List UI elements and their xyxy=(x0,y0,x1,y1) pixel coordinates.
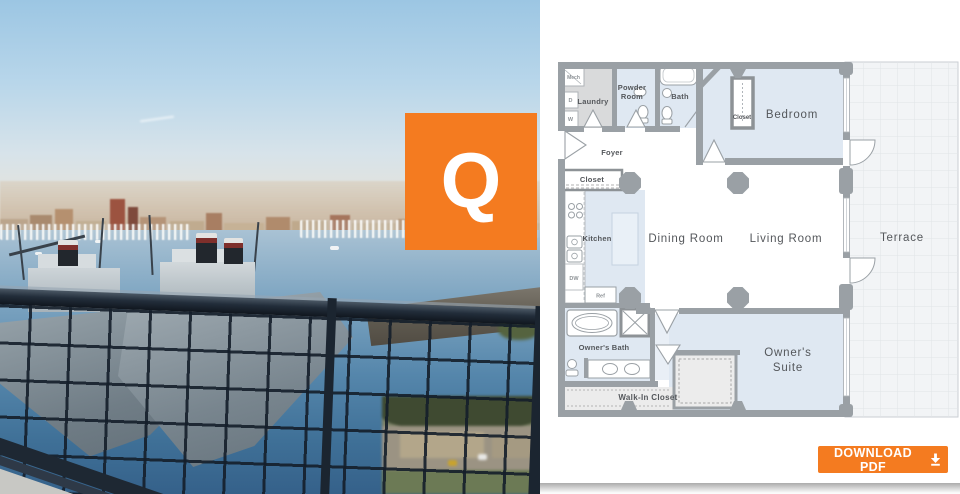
label-laundry: Laundry xyxy=(577,97,609,106)
ship-funnel xyxy=(224,238,243,264)
label-dining-room: Dining Room xyxy=(648,233,723,245)
label-living-room: Living Room xyxy=(750,233,823,245)
label-owners-suite-2: Suite xyxy=(773,362,803,374)
marina-boats-left xyxy=(0,224,190,240)
balcony-fence-railing xyxy=(0,285,540,494)
label-bedroom-closet: Closet xyxy=(733,115,751,121)
label-bedroom: Bedroom xyxy=(766,109,818,121)
label-dishwasher: DW xyxy=(569,276,579,282)
small-boat xyxy=(330,246,339,250)
label-bath: Bath xyxy=(671,92,689,101)
label-mech: Mech xyxy=(567,75,580,81)
floorplan: Mech D W Laundry Powder Room Bath Closet… xyxy=(540,0,960,494)
brand-q-badge: Q xyxy=(405,113,537,250)
label-refrigerator: Ref xyxy=(596,294,605,300)
label-powder-room-2: Room xyxy=(621,92,643,101)
label-hall-closet: Closet xyxy=(580,175,605,184)
label-washer: W xyxy=(568,117,574,123)
download-pdf-label: DOWNLOAD PDF xyxy=(824,446,922,474)
label-foyer: Foyer xyxy=(601,148,623,157)
label-dryer: D xyxy=(569,98,573,104)
brand-letter: Q xyxy=(441,141,502,219)
footer-shadow-strip xyxy=(540,483,960,494)
label-powder-room-1: Powder xyxy=(618,83,646,92)
ship-funnel xyxy=(58,240,78,266)
download-pdf-button[interactable]: DOWNLOAD PDF xyxy=(818,446,948,473)
label-owners-bath: Owner's Bath xyxy=(579,343,630,352)
download-arrow-icon xyxy=(929,453,942,466)
label-kitchen: Kitchen xyxy=(582,234,611,243)
ship-funnel xyxy=(196,233,217,263)
label-walk-in-closet: Walk-In Closet xyxy=(618,393,677,402)
label-owners-suite-1: Owner's xyxy=(764,347,811,359)
floorplan-panel: Mech D W Laundry Powder Room Bath Closet… xyxy=(540,0,960,494)
page: Q xyxy=(0,0,960,494)
label-terrace: Terrace xyxy=(880,232,924,244)
